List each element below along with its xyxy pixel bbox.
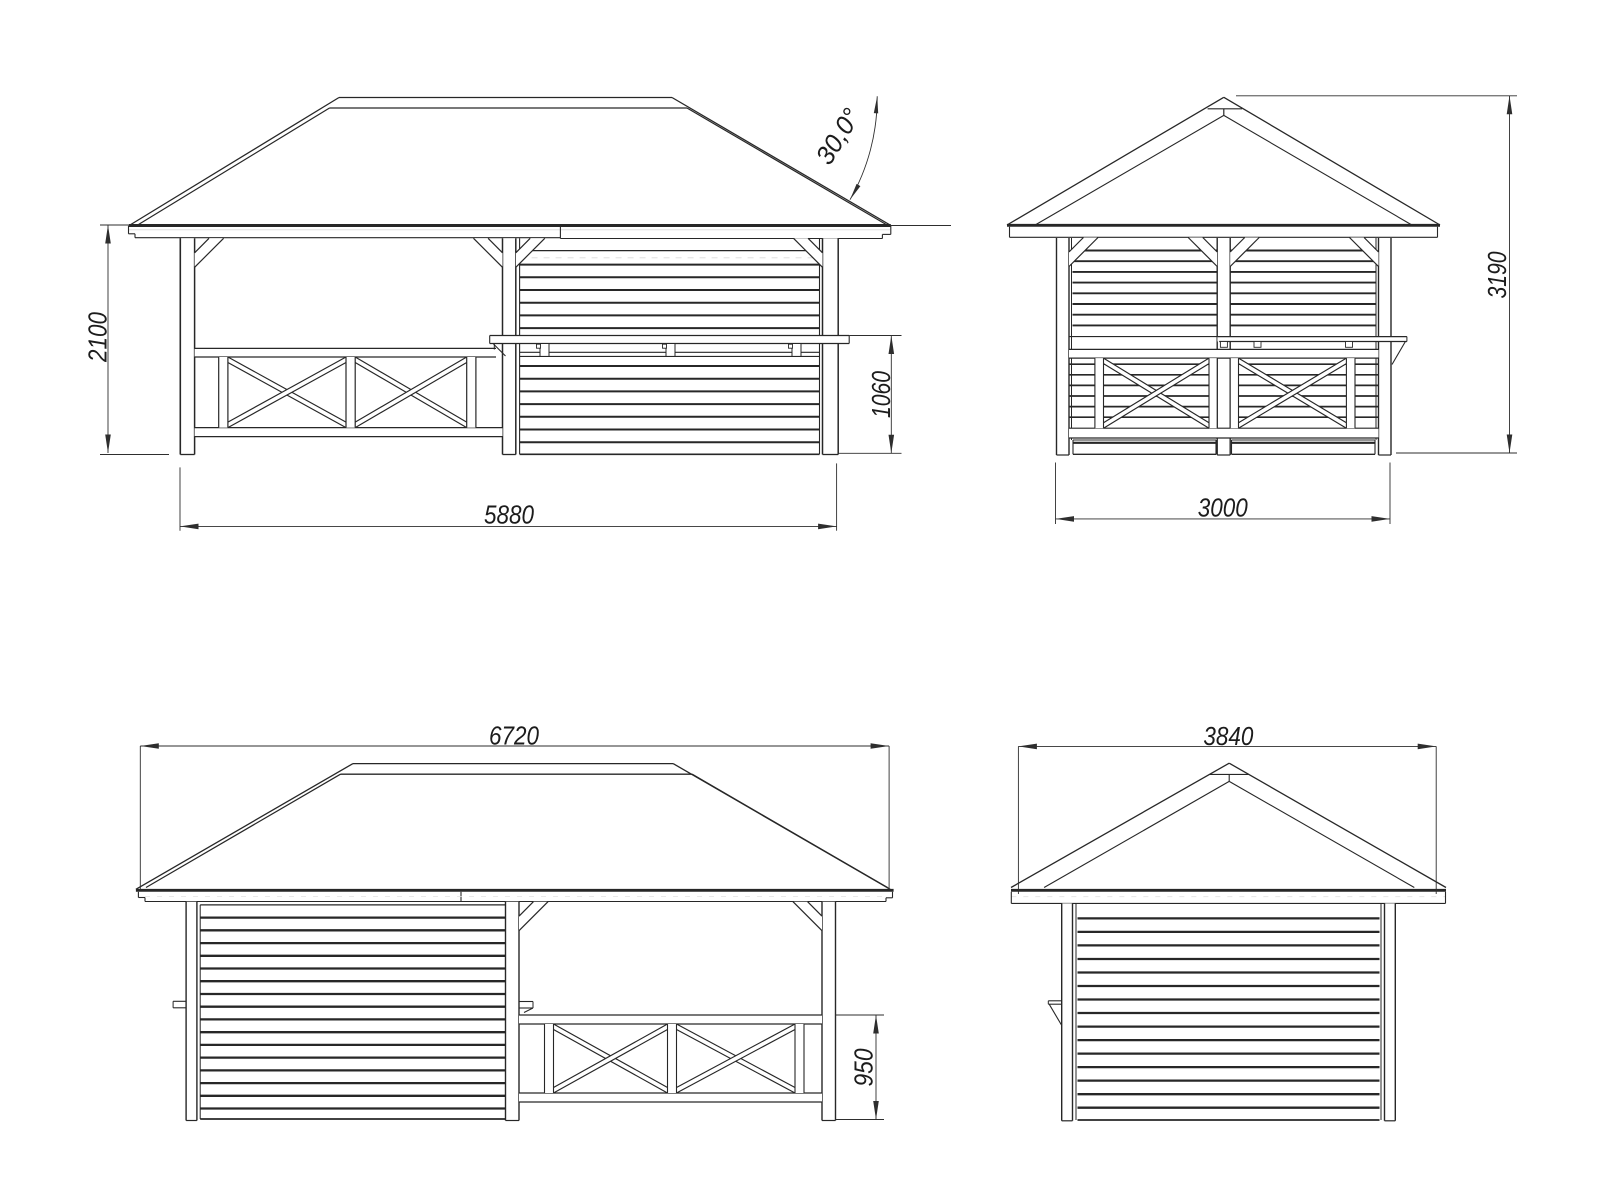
- svg-text:950: 950: [849, 1048, 879, 1086]
- svg-text:6720: 6720: [489, 721, 539, 751]
- svg-text:5880: 5880: [484, 500, 534, 530]
- svg-text:1060: 1060: [866, 371, 896, 418]
- svg-text:2100: 2100: [83, 312, 113, 363]
- svg-text:3840: 3840: [1203, 721, 1253, 751]
- svg-text:3000: 3000: [1198, 493, 1248, 523]
- svg-text:3190: 3190: [1482, 251, 1512, 298]
- svg-text:30,0°: 30,0°: [809, 103, 866, 170]
